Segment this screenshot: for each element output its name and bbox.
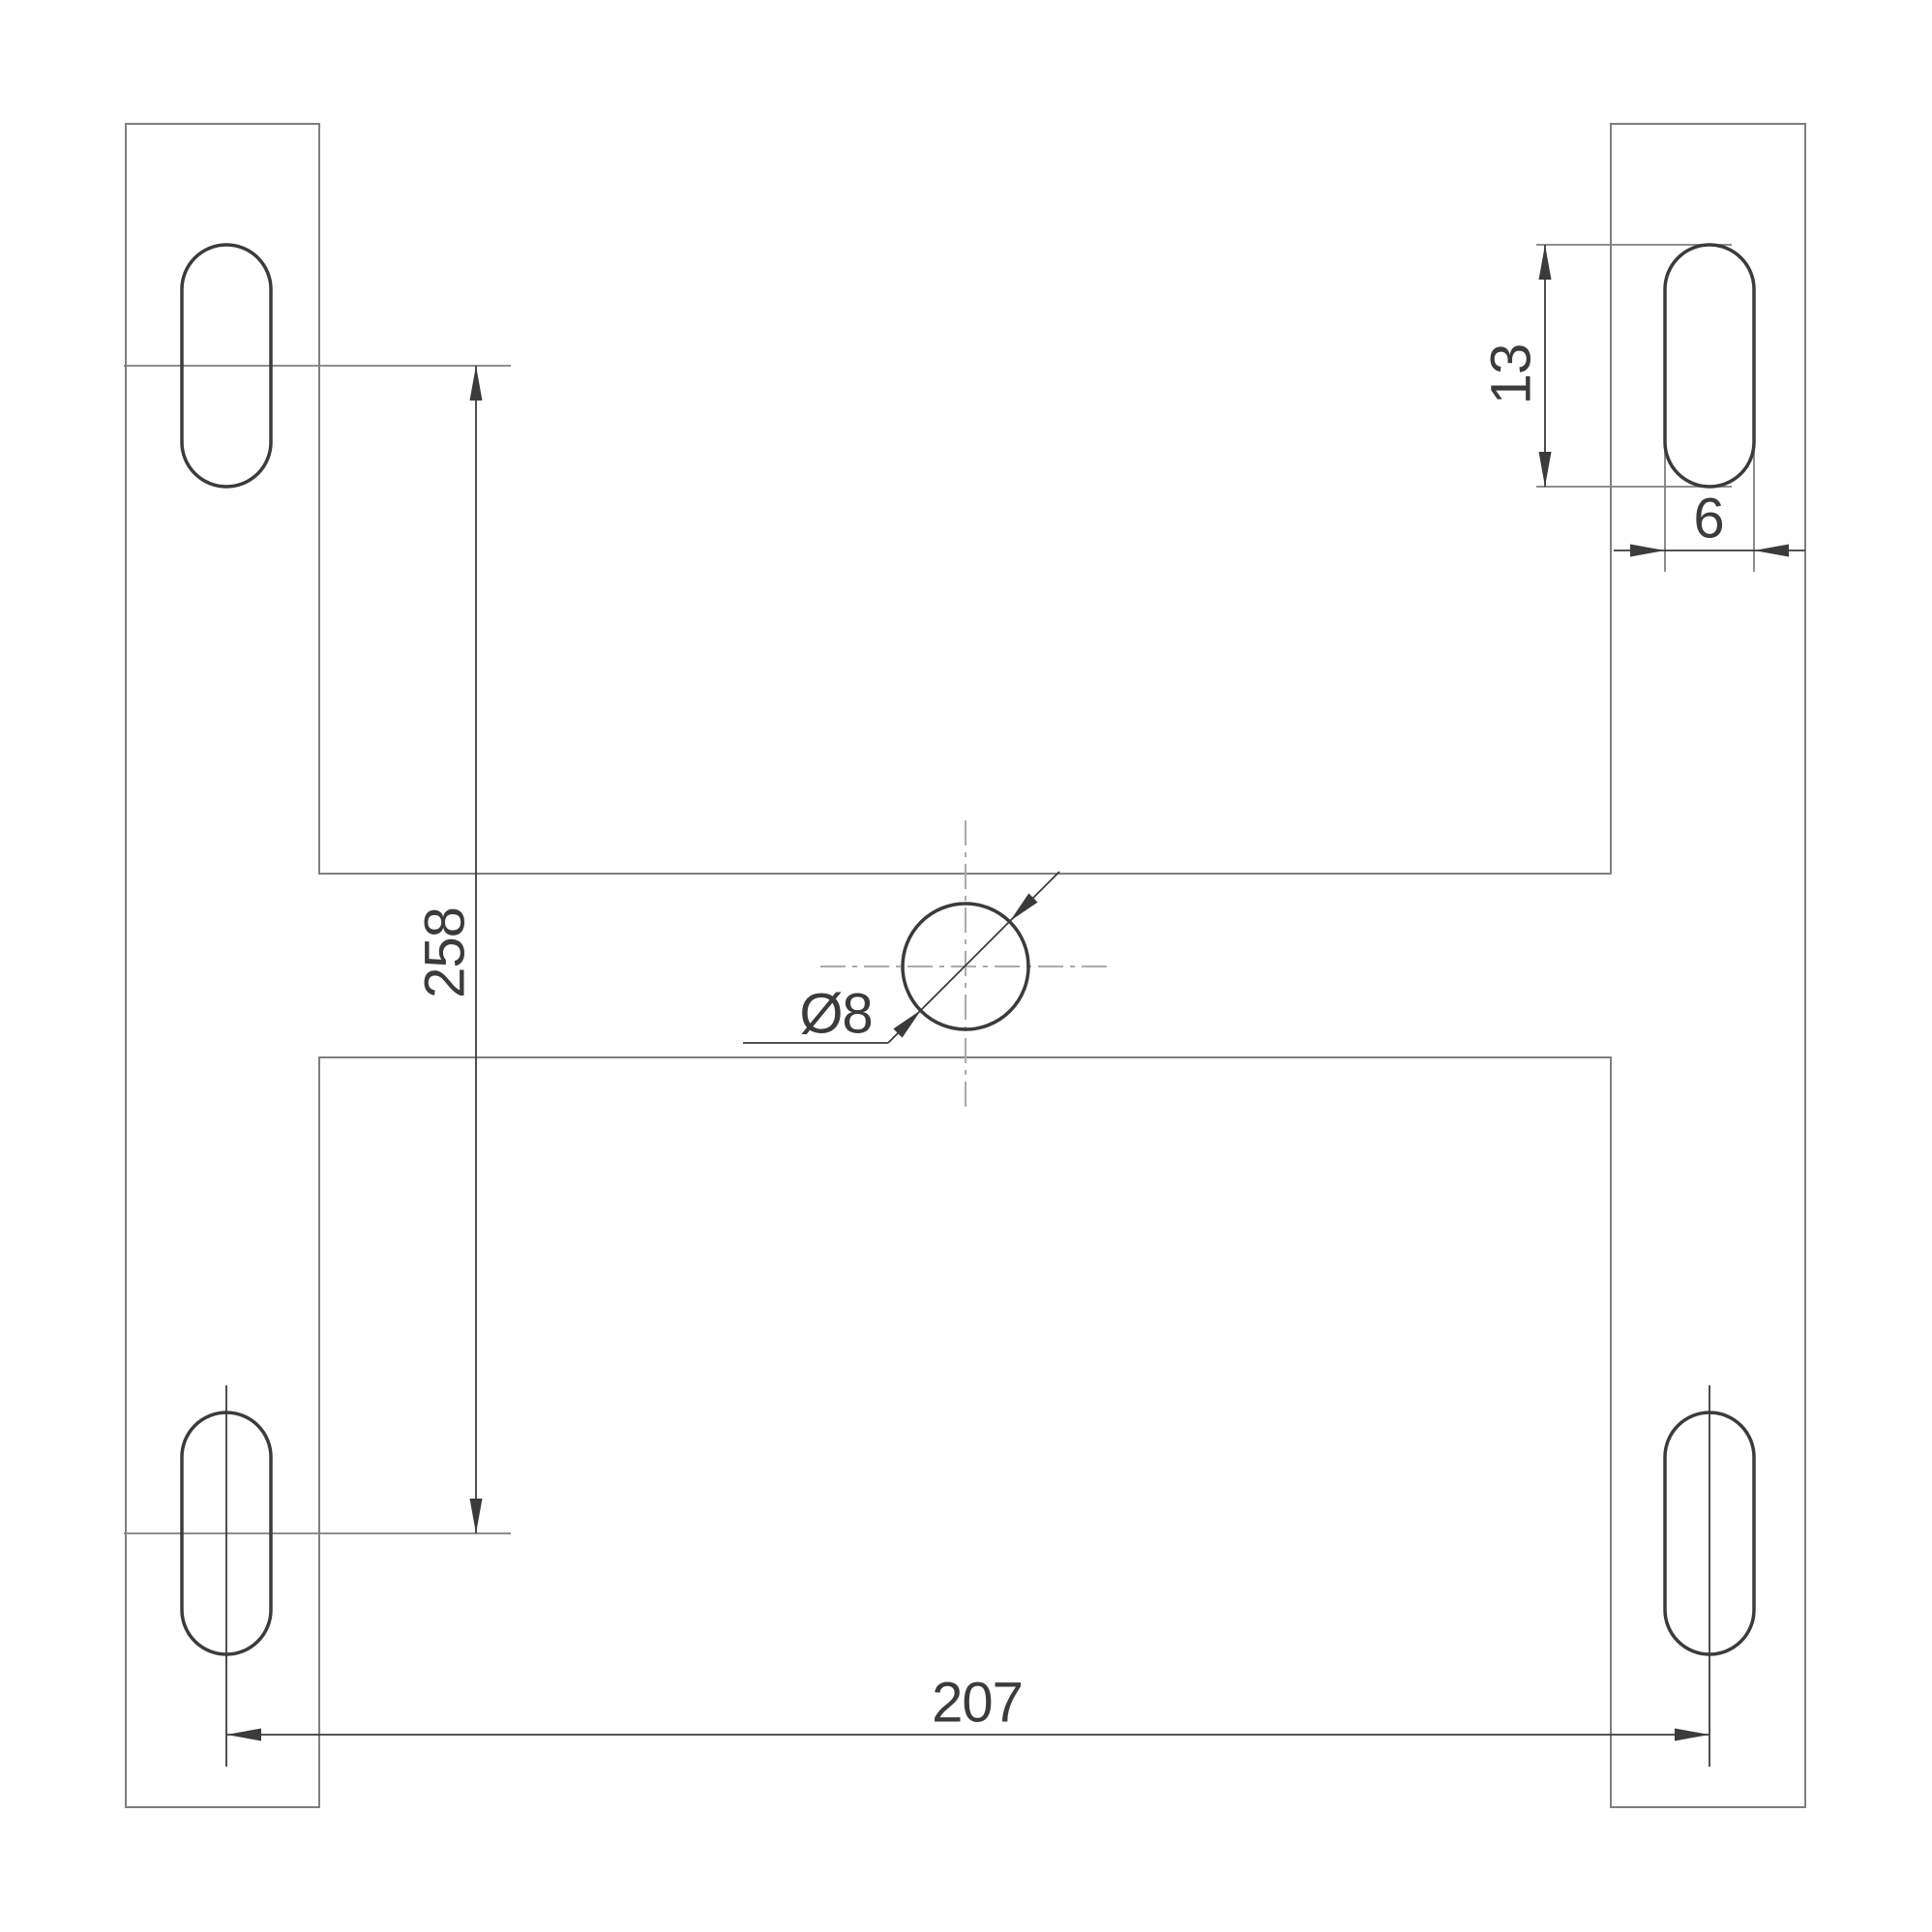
dim-label-258: 258 [414,907,477,998]
dimension-drawing: 258 207 13 6 Ø8 [0,0,1932,1932]
dim-label-dia8: Ø8 [799,983,872,1046]
dim-label-207: 207 [932,1672,1023,1735]
dim-label-6: 6 [1693,488,1723,550]
technical-drawing-canvas: 258 207 13 6 Ø8 [0,0,1932,1932]
dim-label-13: 13 [1480,344,1543,405]
